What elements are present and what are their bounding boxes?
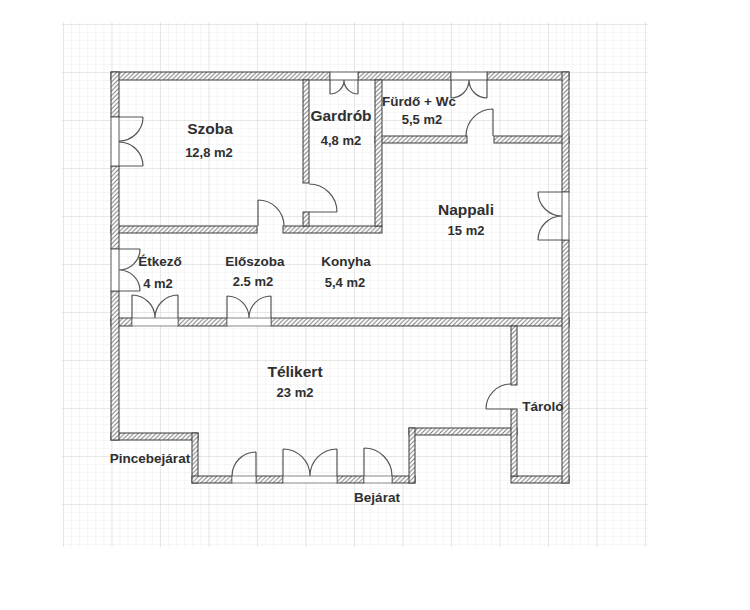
wall-segment xyxy=(375,136,467,143)
room-name-telikert: Télikert xyxy=(267,363,322,380)
room-name-konyha: Konyha xyxy=(321,254,371,269)
room-area-telikert: 23 m2 xyxy=(277,385,314,400)
label-pincebejarat: Pincebejárat xyxy=(110,451,191,466)
wall-segment xyxy=(111,433,198,440)
room-area-eloszoba: 2.5 m2 xyxy=(233,274,273,289)
room-area-furdo: 5,5 m2 xyxy=(402,112,442,127)
label-bejarat: Bejárat xyxy=(354,490,400,505)
wall-segment xyxy=(375,80,382,226)
wall-segment xyxy=(271,318,569,326)
floor-plan-svg: Szoba 12,8 m2 Gardrób 4,8 m2 Fürdő + Wc … xyxy=(0,0,750,610)
wall-segment xyxy=(562,240,569,483)
floor-plan-page: Szoba 12,8 m2 Gardrób 4,8 m2 Fürdő + Wc … xyxy=(0,0,750,610)
wall-segment xyxy=(409,428,415,483)
window-frame xyxy=(111,249,119,291)
wall-segment xyxy=(303,80,309,183)
room-name-tarolo: Tároló xyxy=(522,399,563,414)
room-name-etkezo: Étkező xyxy=(138,254,182,269)
wall-segment xyxy=(409,428,517,435)
window-frame xyxy=(451,72,487,80)
wall-segment xyxy=(337,476,364,483)
window-frame xyxy=(330,72,358,80)
wall-segment xyxy=(358,72,451,80)
window-frame xyxy=(562,192,569,240)
wall-segment xyxy=(111,72,330,80)
room-name-furdo: Fürdő + Wc xyxy=(382,94,456,109)
room-name-nappali: Nappali xyxy=(438,201,494,218)
wall-segment xyxy=(562,72,569,192)
door-sill xyxy=(232,476,256,483)
wall-segment xyxy=(303,212,309,226)
wall-segment xyxy=(511,409,517,476)
wall-segment xyxy=(283,226,382,233)
room-area-etkezo: 4 m2 xyxy=(143,276,173,291)
wall-segment xyxy=(178,318,227,326)
door-sill xyxy=(283,476,337,483)
wall-segment xyxy=(192,476,232,483)
room-area-nappali: 15 m2 xyxy=(448,223,485,238)
page: { "plan": { "type": "floor-plan", "rooms… xyxy=(0,0,750,610)
wall-segment xyxy=(111,226,257,233)
door-sill xyxy=(132,318,178,326)
room-area-konyha: 5,4 m2 xyxy=(325,275,365,290)
room-name-szoba: Szoba xyxy=(187,120,233,137)
room-area-szoba: 12,8 m2 xyxy=(185,145,233,160)
room-area-gardrob: 4,8 m2 xyxy=(321,133,361,148)
wall-segment xyxy=(111,72,119,117)
wall-segment xyxy=(511,326,517,385)
wall-segment xyxy=(111,166,119,249)
door-sill xyxy=(227,318,271,326)
wall-segment xyxy=(256,476,283,483)
wall-segment xyxy=(511,476,569,483)
window-frame xyxy=(111,117,119,166)
wall-segment xyxy=(494,136,569,143)
room-name-gardrob: Gardrób xyxy=(310,107,371,124)
wall-segment xyxy=(111,291,119,440)
wall-segment xyxy=(487,72,569,80)
door-sill xyxy=(364,476,392,483)
room-name-eloszoba: Előszoba xyxy=(225,254,285,269)
